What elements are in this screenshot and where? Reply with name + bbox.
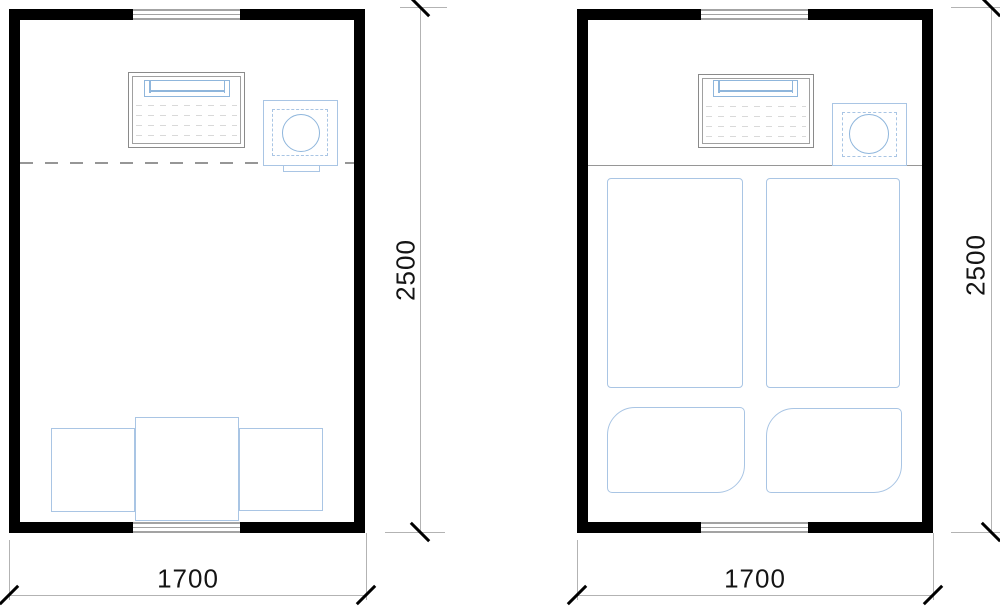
width-dimension-line (9, 595, 366, 596)
desk-surface-texture (136, 115, 237, 116)
chair-seat-circle (849, 114, 889, 154)
floor-plan-right (577, 9, 933, 533)
wall-top-right-segment (808, 9, 933, 20)
wall-right (354, 9, 365, 533)
desk-surface-texture (136, 135, 237, 136)
desk-surface-texture (706, 126, 806, 127)
floor-plan-left (9, 9, 365, 533)
wall-bottom-left-segment (577, 522, 701, 533)
window-glass-line (701, 14, 808, 15)
office-chair (263, 100, 338, 166)
dimension-extension-line (933, 533, 934, 600)
window-glass-line (701, 527, 808, 528)
wall-top-left-segment (577, 9, 701, 20)
desk-surface-texture (706, 116, 806, 117)
floor-cushion-right (766, 408, 902, 493)
low-table (135, 417, 239, 521)
window-top (133, 9, 240, 20)
floor-cushion-left (607, 407, 745, 493)
width-dimension-label: 1700 (157, 564, 219, 595)
window-glass-line (133, 527, 240, 528)
wall-bottom-left-segment (9, 522, 133, 533)
window-bottom (701, 522, 808, 533)
window-bottom (133, 522, 240, 533)
wall-top-left-segment (9, 9, 133, 20)
floor-plan-drawing: 2500 1700 2500 1700 (0, 0, 1000, 606)
height-dimension-label: 2500 (961, 234, 992, 296)
chair-backrest-tab (283, 165, 320, 172)
desk-monitor (144, 80, 230, 97)
floor-seat-right (239, 428, 323, 511)
wall-top-right-segment (240, 9, 365, 20)
height-dimension-label: 2500 (391, 239, 422, 301)
window-top (701, 9, 808, 20)
office-chair (832, 103, 907, 166)
wall-bottom-right-segment (240, 522, 365, 533)
desk-surface-texture (136, 125, 237, 126)
width-dimension-label: 1700 (724, 564, 786, 595)
mattress-right (766, 178, 900, 388)
chair-seat-circle (282, 114, 320, 152)
floor-seat-left (51, 428, 135, 512)
desk-surface-texture (136, 105, 237, 106)
dimension-extension-line (366, 533, 367, 600)
wall-left (577, 9, 588, 533)
wall-right (922, 9, 933, 533)
desk-surface-texture (706, 136, 806, 137)
wall-bottom-right-segment (808, 522, 933, 533)
desk-monitor (713, 80, 798, 97)
wall-left (9, 9, 20, 533)
width-dimension-line (577, 595, 934, 596)
desk-surface-texture (706, 106, 806, 107)
monitor-front-line (149, 90, 225, 92)
dimension-extension-line (385, 532, 445, 533)
window-glass-line (133, 14, 240, 15)
mattress-left (607, 178, 743, 388)
monitor-front-line (718, 90, 793, 92)
